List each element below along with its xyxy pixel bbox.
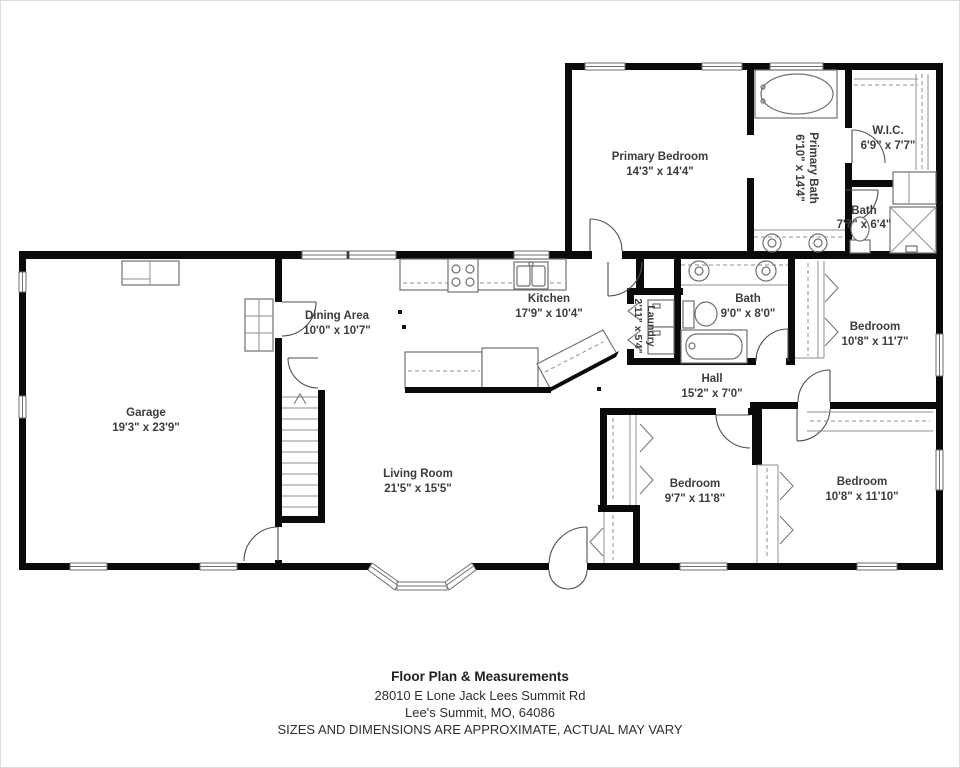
room-label: Bedroom [670, 478, 720, 490]
footer: Floor Plan & Measurements 28010 E Lone J… [277, 669, 682, 737]
closet-bedroom-left [613, 415, 653, 505]
room-label: W.I.C. [872, 125, 903, 137]
footer-city: Lee's Summit, MO, 64086 [405, 705, 555, 720]
closet-between-bedrooms [757, 465, 793, 563]
closet-bedroom-right-upper [795, 261, 838, 358]
kitchen-fixtures [398, 259, 619, 393]
window [349, 251, 396, 259]
room-dims: 6'9" x 7'7" [861, 140, 916, 152]
room-dims: 7'7" x 6'4" [837, 219, 892, 231]
front-door-exterior-swing [549, 570, 587, 589]
room-dims: 10'8" x 11'7" [842, 336, 909, 348]
room-label: Bedroom [837, 476, 887, 488]
window [200, 563, 237, 570]
room-label: Laundry [645, 305, 657, 347]
linen-closet [893, 172, 936, 204]
room-wic: W.I.C. 6'9" x 7'7" [861, 125, 916, 152]
post-marker [597, 387, 601, 391]
garage-fixtures [122, 261, 273, 351]
room-label: Bath [735, 293, 761, 305]
garage-cabinet [122, 261, 179, 285]
stove [448, 259, 478, 292]
room-label: Primary Bedroom [612, 151, 709, 163]
door-bedroom-left [716, 415, 750, 448]
room-label: Garage [126, 407, 166, 419]
room-label: Hall [701, 373, 722, 385]
room-dims: 19'3" x 23'9" [112, 422, 180, 434]
room-primary-bedroom: Primary Bedroom 14'3" x 14'4" [612, 151, 709, 178]
post-marker [398, 310, 402, 314]
footer-disclaimer: SIZES AND DIMENSIONS ARE APPROXIMATE, AC… [277, 722, 682, 737]
window [702, 63, 742, 70]
window [302, 251, 347, 259]
room-label: Kitchen [528, 293, 570, 305]
room-dims: 15'2" x 7'0" [681, 388, 742, 400]
window [585, 63, 625, 70]
room-label: Bedroom [850, 321, 900, 333]
door-stair-top [288, 358, 318, 388]
room-dining: Dining Area 10'0" x 10'7" [303, 310, 371, 337]
floor-plan-canvas: Primary Bedroom 14'3" x 14'4" Primary Ba… [0, 0, 960, 768]
staircase [282, 394, 318, 507]
footer-address: 28010 E Lone Jack Lees Summit Rd [374, 688, 585, 703]
kitchen-sink [514, 262, 548, 289]
room-dims: 17'9" x 10'4" [515, 308, 583, 320]
wic-closet-rods [854, 74, 928, 170]
room-dims: 9'7" x 11'8" [665, 493, 726, 505]
window [770, 63, 823, 70]
garage-shelves [245, 299, 273, 351]
closet-bedroom-right-lower-top [807, 412, 933, 431]
window [514, 251, 549, 259]
room-dims: 21'5" x 15'5" [384, 483, 452, 495]
room-label: Primary Bath [807, 132, 819, 204]
room-primary-bath: Primary Bath 6'10" x 14'4" [793, 132, 819, 204]
room-bedroom-left: Bedroom 9'7" x 11'8" [665, 478, 726, 505]
main-bath-vanity [681, 261, 788, 285]
footer-title: Floor Plan & Measurements [391, 669, 569, 684]
door-bedroom-right-lower [797, 409, 830, 441]
door-garage-landing [244, 527, 278, 561]
room-dims: 10'8" x 11'10" [825, 491, 898, 503]
room-kitchen: Kitchen 17'9" x 10'4" [515, 293, 583, 320]
room-bedroom-right-lower: Bedroom 10'8" x 11'10" [825, 476, 898, 503]
primary-vanity [754, 230, 845, 252]
room-hall: Hall 15'2" x 7'0" [681, 373, 742, 400]
post-marker [402, 325, 406, 329]
toilet-main-bath [683, 301, 717, 328]
door-primary-bedroom [590, 219, 622, 251]
room-living: Living Room 21'5" x 15'5" [383, 468, 453, 495]
room-dims: 10'0" x 10'7" [303, 325, 371, 337]
window [857, 563, 897, 570]
room-laundry: Laundry 2'11" x 5'4" [632, 298, 657, 353]
kitchen-island [405, 330, 619, 393]
room-bath-main: Bath 9'0" x 8'0" [721, 293, 776, 320]
window [70, 563, 107, 570]
window [936, 334, 943, 376]
room-bedroom-right-upper: Bedroom 10'8" x 11'7" [842, 321, 909, 348]
door-bedroom-right-upper [798, 370, 830, 402]
shower [890, 207, 936, 253]
window [19, 272, 26, 292]
room-label: Bath [851, 205, 877, 217]
bay-window [368, 563, 476, 590]
floor-plan-page: Primary Bedroom 14'3" x 14'4" Primary Ba… [0, 0, 960, 768]
room-label: Dining Area [305, 310, 370, 322]
room-dims: 6'10" x 14'4" [793, 134, 805, 202]
stairs-up-arrow [294, 394, 306, 404]
room-label: Living Room [383, 468, 453, 480]
room-dims: 14'3" x 14'4" [626, 166, 694, 178]
room-dims: 2'11" x 5'4" [632, 298, 644, 353]
bathtub-main [681, 330, 747, 363]
door-main-bath [756, 329, 788, 361]
window [19, 396, 26, 418]
coat-closet [590, 512, 613, 563]
bathtub-primary [755, 70, 837, 118]
window [680, 563, 727, 570]
room-garage: Garage 19'3" x 23'9" [112, 407, 180, 434]
front-door [549, 527, 587, 589]
room-dims: 9'0" x 8'0" [721, 308, 776, 320]
window [936, 450, 943, 490]
